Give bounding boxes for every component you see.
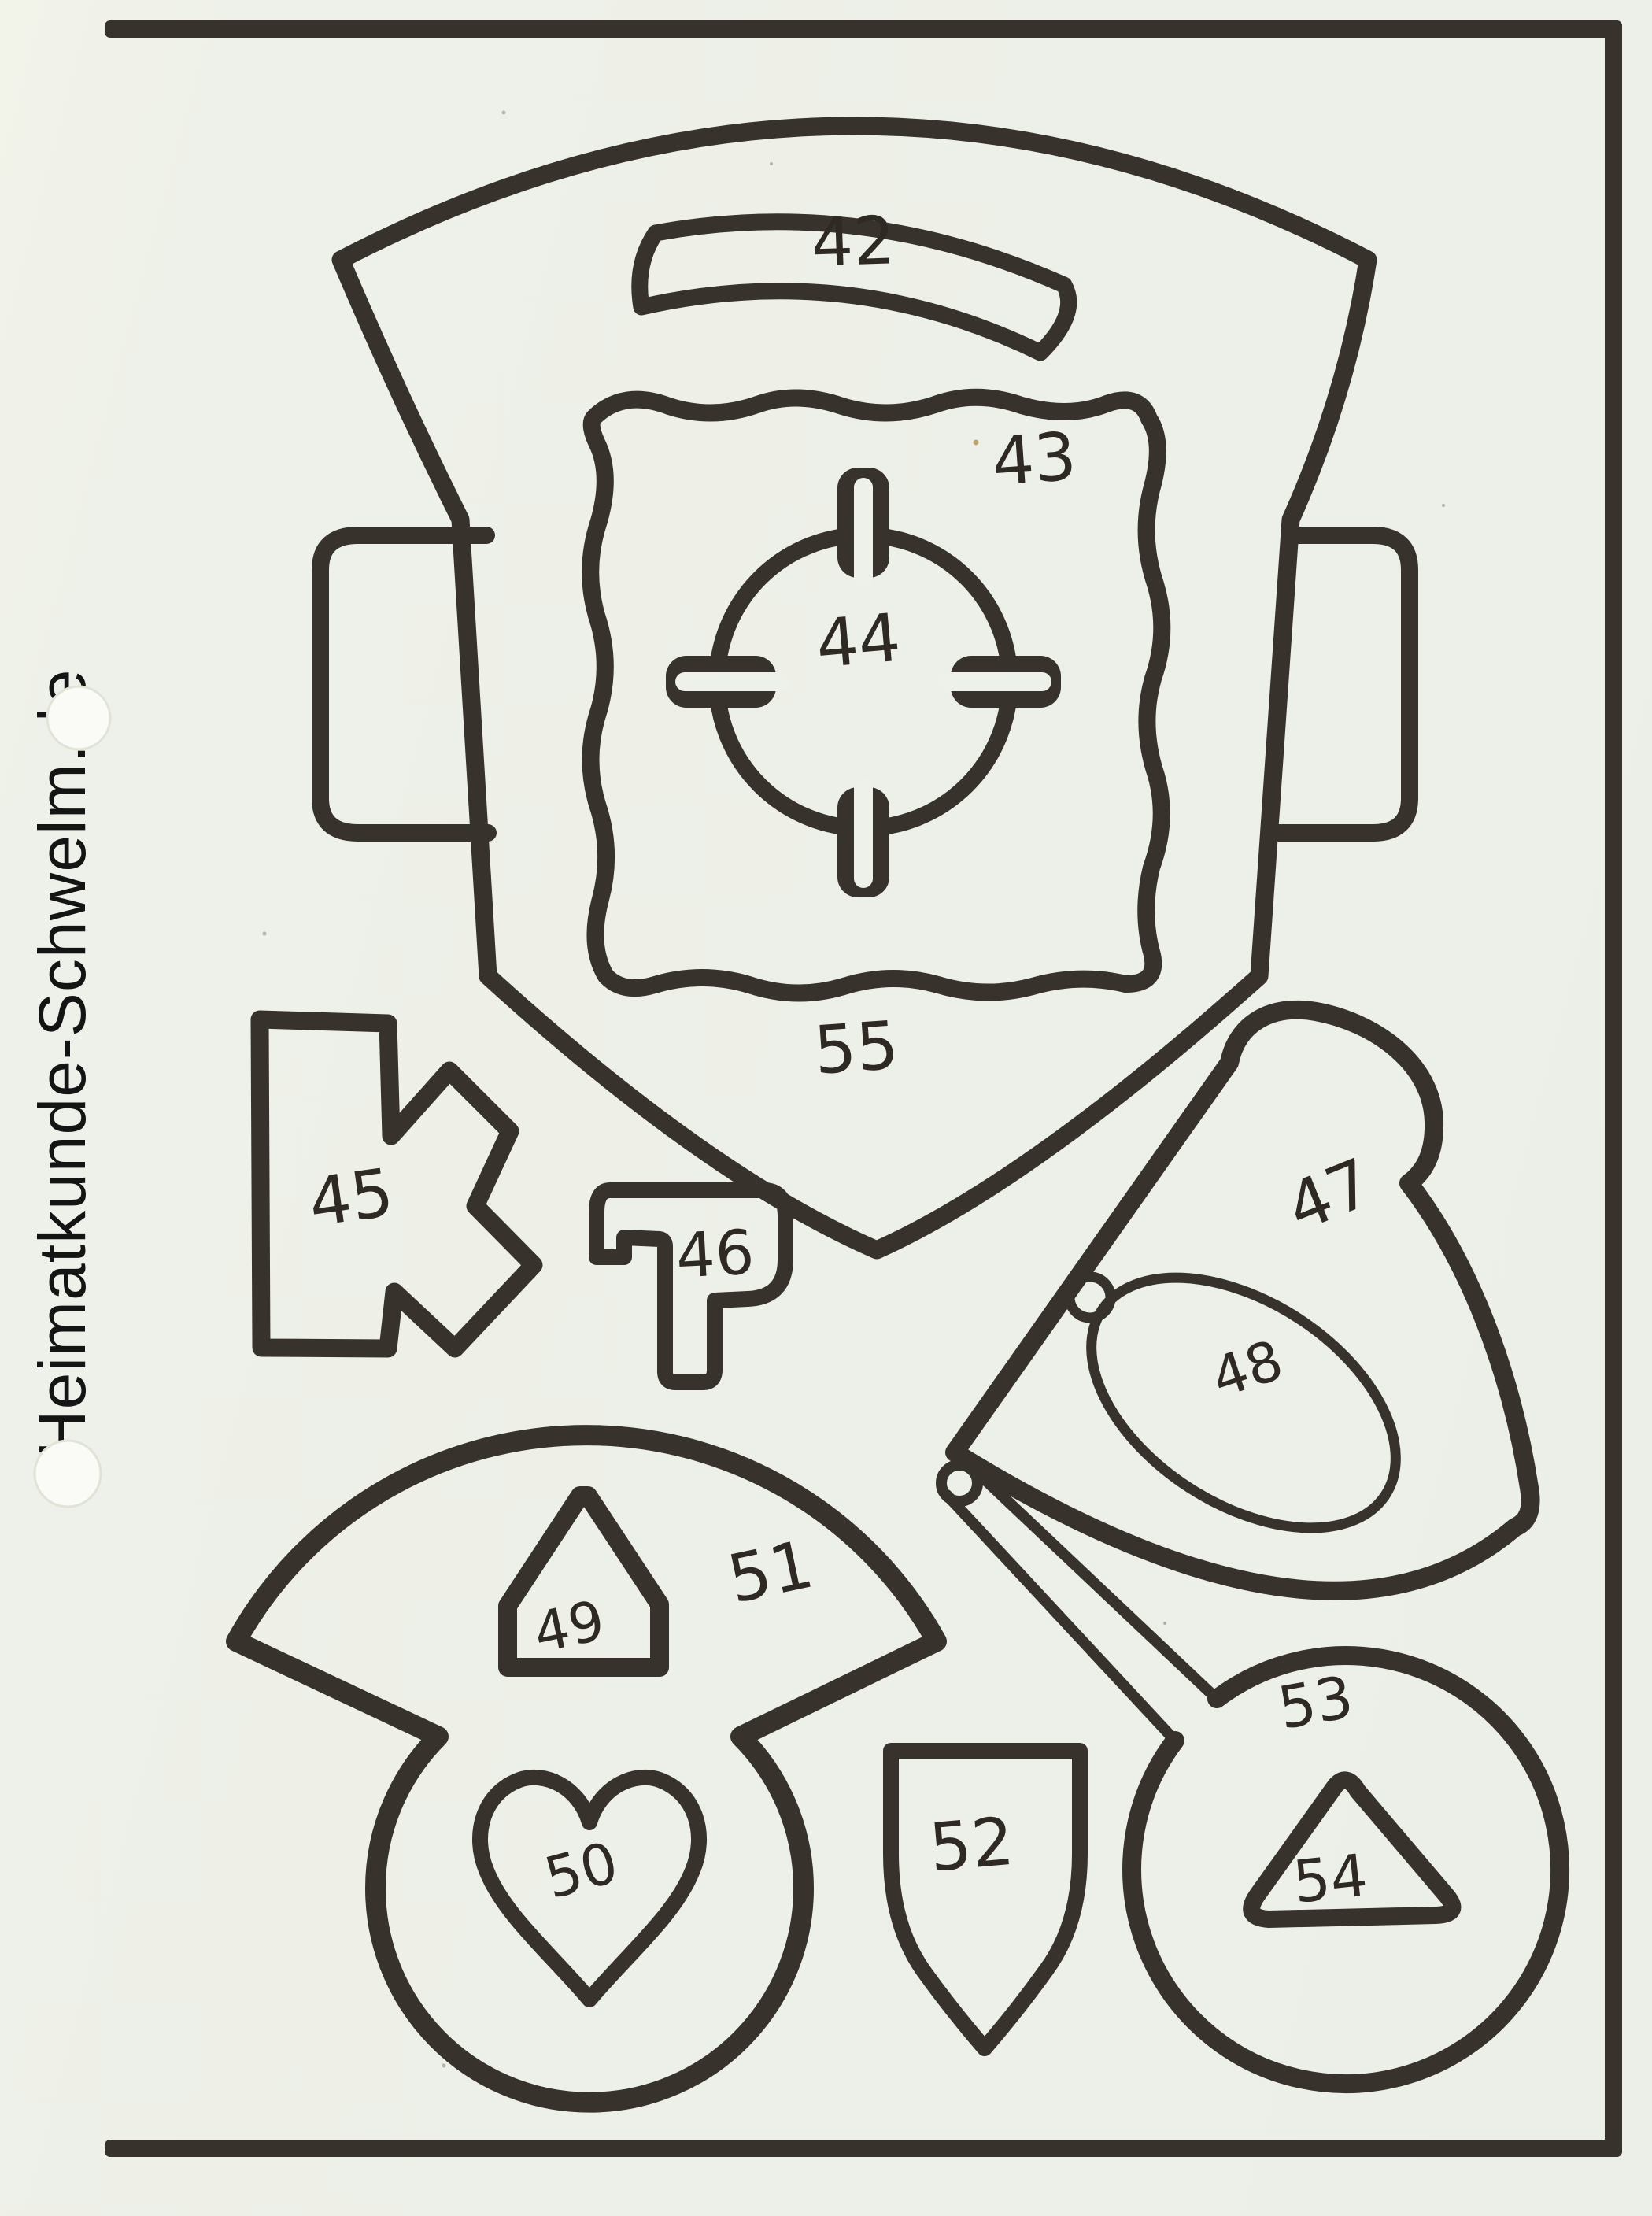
part-53-stick [947,1469,1217,1741]
part-44-group [666,468,1061,897]
part-47-outline [955,1010,1531,1591]
part-44-right-slot [937,672,1051,691]
frame-right-border [1605,20,1622,2157]
scanned-page: 42 43 44 45 46 47 48 49 50 51 52 53 54 5… [0,0,1652,2216]
part-55-right-tab [1277,535,1410,833]
part-45-outline [260,1019,534,1348]
part-label-50: 50 [538,1829,624,1911]
punch-hole-bottom [35,1441,101,1507]
part-label-45: 45 [304,1153,397,1241]
part-48-knob [1070,1277,1111,1318]
part-53-stick-knob [941,1465,978,1501]
part-label-44: 44 [813,599,904,683]
part-label-46: 46 [674,1217,756,1292]
part-label-47: 47 [1276,1144,1383,1247]
part-44-bottom-slot [854,778,873,888]
part-label-53: 53 [1273,1663,1358,1743]
part-52-outline [891,1751,1080,2048]
punch-hole-top [47,686,110,749]
part-label-43: 43 [989,417,1078,500]
template-drawing: 42 43 44 45 46 47 48 49 50 51 52 53 54 5… [0,0,1652,2216]
part-label-54: 54 [1290,1841,1371,1916]
watermark-text: Heimatkunde-Schwelm.de [25,669,99,1458]
part-label-52: 52 [926,1803,1017,1887]
part-label-48: 48 [1204,1327,1291,1411]
part-label-49: 49 [528,1588,610,1666]
part-44-top-slot [854,478,873,588]
frame-top-border [105,20,1622,38]
part-label-42: 42 [810,202,896,282]
frame-bottom-border [105,2140,1622,2157]
paper-stain-speck [974,440,979,446]
part-44-left-slot [675,672,789,691]
part-label-55: 55 [811,1006,900,1089]
part-label-51: 51 [722,1526,820,1619]
